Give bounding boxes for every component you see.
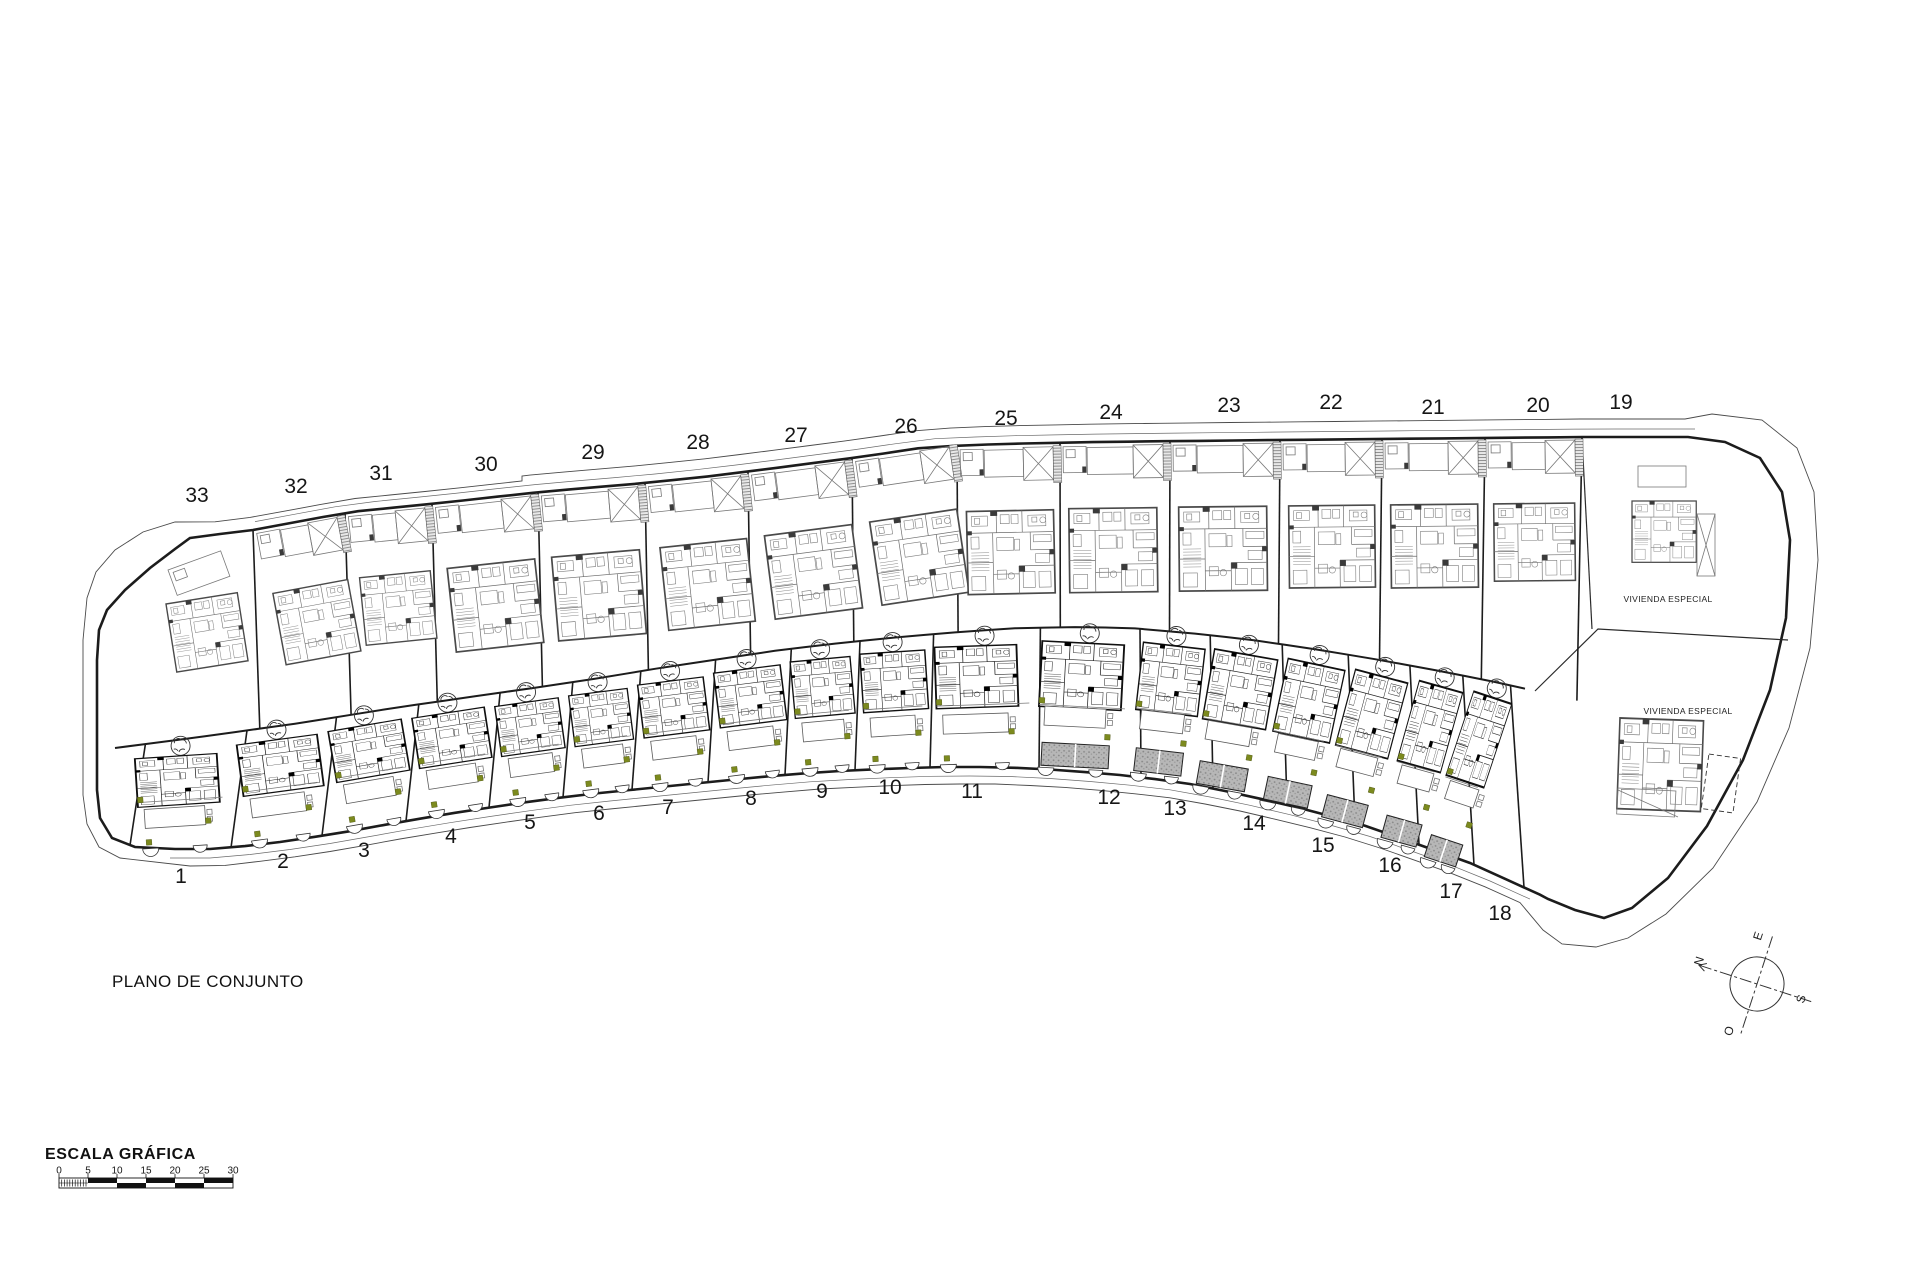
bush-icon xyxy=(1037,767,1053,776)
bush-icon xyxy=(1400,845,1415,855)
plot-divider-top xyxy=(253,530,260,729)
house-plan xyxy=(1289,505,1376,588)
house-plan xyxy=(870,509,969,605)
plot-top-20 xyxy=(1488,439,1584,581)
bush-icon xyxy=(252,839,269,849)
bush-icon xyxy=(346,824,363,835)
plot-bottom-7 xyxy=(635,658,716,793)
house-plan xyxy=(360,571,437,646)
plot-number-bottom-1: 1 xyxy=(175,865,187,889)
plot-number-top-22: 22 xyxy=(1319,391,1342,415)
plot-number-bottom-6: 6 xyxy=(593,802,605,826)
tree-icon xyxy=(810,639,831,660)
bush-icon xyxy=(143,848,159,857)
stairs-hatch xyxy=(844,460,857,498)
tree-icon xyxy=(515,681,536,702)
plot-bottom-2 xyxy=(234,715,331,849)
plot-divider-bottom xyxy=(855,641,860,770)
plot-top-27 xyxy=(751,460,871,620)
plot-number-top-27: 27 xyxy=(784,424,807,448)
bush-icon xyxy=(1130,772,1147,782)
stairs-hatch xyxy=(1053,446,1062,483)
house-plan xyxy=(1391,504,1479,588)
bush-icon xyxy=(1345,826,1360,836)
bush-icon xyxy=(510,797,527,807)
plot-number-bottom-7: 7 xyxy=(662,796,674,820)
stairs-hatch xyxy=(638,485,649,523)
pool xyxy=(943,713,1009,734)
plot-number-bottom-2: 2 xyxy=(277,850,289,874)
plot-number-top-30: 30 xyxy=(474,453,497,477)
plot-number-bottom-8: 8 xyxy=(745,787,757,811)
house-plan xyxy=(1069,508,1158,593)
stairs-hatch xyxy=(425,506,437,544)
house-plan xyxy=(1632,501,1696,562)
tree-icon xyxy=(1238,634,1260,656)
bush-icon xyxy=(869,765,885,774)
house-plan xyxy=(273,580,361,665)
plot-top-30 xyxy=(435,494,555,652)
plot-number-bottom-5: 5 xyxy=(524,811,536,835)
bush-icon xyxy=(1088,770,1102,778)
bush-icon xyxy=(583,789,600,799)
plot-top-28 xyxy=(648,474,764,631)
bush-icon xyxy=(193,845,207,853)
tree-icon xyxy=(587,671,608,692)
stairs-hatch xyxy=(741,474,753,512)
pool xyxy=(250,792,307,818)
house-plan xyxy=(764,525,862,620)
bush-icon xyxy=(729,774,746,784)
house-plan xyxy=(1335,669,1407,758)
bush-icon xyxy=(802,768,819,777)
plot-bottom-8 xyxy=(711,646,794,785)
tree-icon xyxy=(437,692,459,714)
pool xyxy=(651,736,699,761)
stairs-hatch xyxy=(1575,439,1583,476)
plot-bottom-6 xyxy=(566,669,640,799)
special-dwelling-label-lower: VIVIENDA ESPECIAL xyxy=(1643,706,1732,716)
plot-top-31 xyxy=(348,506,446,646)
house-plan xyxy=(1617,718,1704,812)
site-plan-page: PLANO DE CONJUNTO ESCALA GRÁFICA VIVIEND… xyxy=(0,0,1920,1280)
plot-bottom-10 xyxy=(859,630,933,773)
scale-tick-1: 5 xyxy=(85,1166,91,1177)
pool xyxy=(1044,706,1106,728)
pool xyxy=(508,753,555,778)
scale-title: ESCALA GRÁFICA xyxy=(45,1146,196,1164)
house-plan xyxy=(1039,641,1124,711)
pool xyxy=(426,763,478,789)
plot-bottom-1 xyxy=(134,734,226,857)
plot-number-bottom-3: 3 xyxy=(358,839,370,863)
driveway xyxy=(1041,742,1109,768)
bush-icon xyxy=(652,783,669,793)
scale-tick-6: 30 xyxy=(227,1166,238,1177)
page-title: PLANO DE CONJUNTO xyxy=(112,972,304,992)
bush-icon xyxy=(1164,776,1179,785)
tree-icon xyxy=(736,648,757,669)
plot-number-bottom-4: 4 xyxy=(445,825,457,849)
bush-icon xyxy=(940,764,956,773)
plot-number-top-26: 26 xyxy=(894,415,917,439)
plot-number-top-33: 33 xyxy=(185,484,208,508)
pool xyxy=(144,806,206,829)
house-plan xyxy=(447,559,544,652)
plot-top-22 xyxy=(1283,441,1384,588)
house-plan xyxy=(1494,503,1576,581)
plot-bottom-5 xyxy=(492,678,572,807)
plot-top-32 xyxy=(256,515,369,666)
house-plan xyxy=(1179,506,1268,591)
plot-number-top-29: 29 xyxy=(581,441,604,465)
plot-bottom-11 xyxy=(934,625,1032,773)
plot-bottom-3 xyxy=(325,700,419,835)
plot-number-top-25: 25 xyxy=(994,407,1017,431)
special-dwelling-label-upper: VIVIENDA ESPECIAL xyxy=(1623,594,1712,604)
scale-tick-0: 0 xyxy=(56,1166,62,1177)
plot-number-top-21: 21 xyxy=(1421,396,1444,420)
plot-number-top-20: 20 xyxy=(1526,394,1549,418)
plot-number-bottom-17: 17 xyxy=(1439,880,1462,904)
house-plan xyxy=(166,593,248,672)
plot-top-29 xyxy=(541,485,658,641)
pool xyxy=(727,726,775,751)
plot-divider-bottom xyxy=(930,634,934,767)
bush-icon xyxy=(1227,791,1242,800)
tree-icon xyxy=(883,632,903,652)
bush-icon xyxy=(688,778,703,787)
house-plan xyxy=(1136,642,1205,716)
scale-tick-5: 25 xyxy=(198,1166,209,1177)
house-plan xyxy=(860,650,929,713)
house-plan xyxy=(966,510,1055,595)
stairs-hatch xyxy=(1375,441,1383,478)
plot-number-bottom-11: 11 xyxy=(961,780,983,804)
pool xyxy=(581,744,624,768)
stairs-hatch xyxy=(1478,440,1486,477)
plot-number-bottom-18: 18 xyxy=(1488,902,1511,926)
plot-top-19 xyxy=(1632,466,1715,576)
tree-icon xyxy=(659,660,680,681)
stairs-hatch xyxy=(531,494,543,532)
plot-top-21 xyxy=(1385,440,1487,588)
plot-number-bottom-12: 12 xyxy=(1097,786,1120,810)
plot-top-33 xyxy=(166,551,248,672)
plot-number-top-23: 23 xyxy=(1217,394,1240,418)
bush-icon xyxy=(296,833,311,842)
stairs-hatch xyxy=(1163,443,1171,480)
scale-tick-3: 15 xyxy=(140,1166,151,1177)
plot-number-bottom-9: 9 xyxy=(816,780,828,804)
plot-top-23 xyxy=(1173,442,1282,591)
plot-top-25 xyxy=(960,446,1064,595)
plot-number-bottom-10: 10 xyxy=(878,776,901,800)
plot-bottom-12 xyxy=(1035,621,1129,779)
house-plan xyxy=(934,645,1018,709)
plot-number-bottom-16: 16 xyxy=(1378,854,1401,878)
tree-icon xyxy=(1080,623,1100,643)
scale-tick-2: 10 xyxy=(111,1166,122,1177)
plot-divider-bottom xyxy=(1511,685,1525,887)
plot-bottom-4 xyxy=(409,688,500,820)
plot-number-bottom-15: 15 xyxy=(1311,834,1334,858)
plot-bottom-9 xyxy=(788,637,860,777)
plot-number-top-32: 32 xyxy=(284,475,307,499)
special-dwelling-lower xyxy=(1617,718,1741,817)
plot-divider-top xyxy=(1577,437,1582,701)
tree-icon xyxy=(266,719,287,740)
house-plan xyxy=(135,754,220,808)
house-plan xyxy=(1203,649,1278,730)
plot-top-24 xyxy=(1063,443,1173,592)
pool xyxy=(870,715,916,737)
tree-icon xyxy=(353,704,375,726)
plot-number-top-24: 24 xyxy=(1099,401,1122,425)
site-plan-drawing xyxy=(0,0,1920,1280)
driveway xyxy=(1134,748,1184,776)
plot-number-top-28: 28 xyxy=(686,431,709,455)
house-plan xyxy=(552,550,647,641)
plot-number-top-31: 31 xyxy=(369,462,392,486)
tree-icon xyxy=(975,626,995,646)
house-plan xyxy=(660,539,755,631)
plot-number-bottom-13: 13 xyxy=(1163,797,1186,821)
plot-number-top-19: 19 xyxy=(1609,391,1632,415)
pool xyxy=(802,719,846,742)
stairs-hatch xyxy=(1273,442,1281,479)
plot-number-bottom-14: 14 xyxy=(1242,812,1265,836)
scale-tick-4: 20 xyxy=(169,1166,180,1177)
